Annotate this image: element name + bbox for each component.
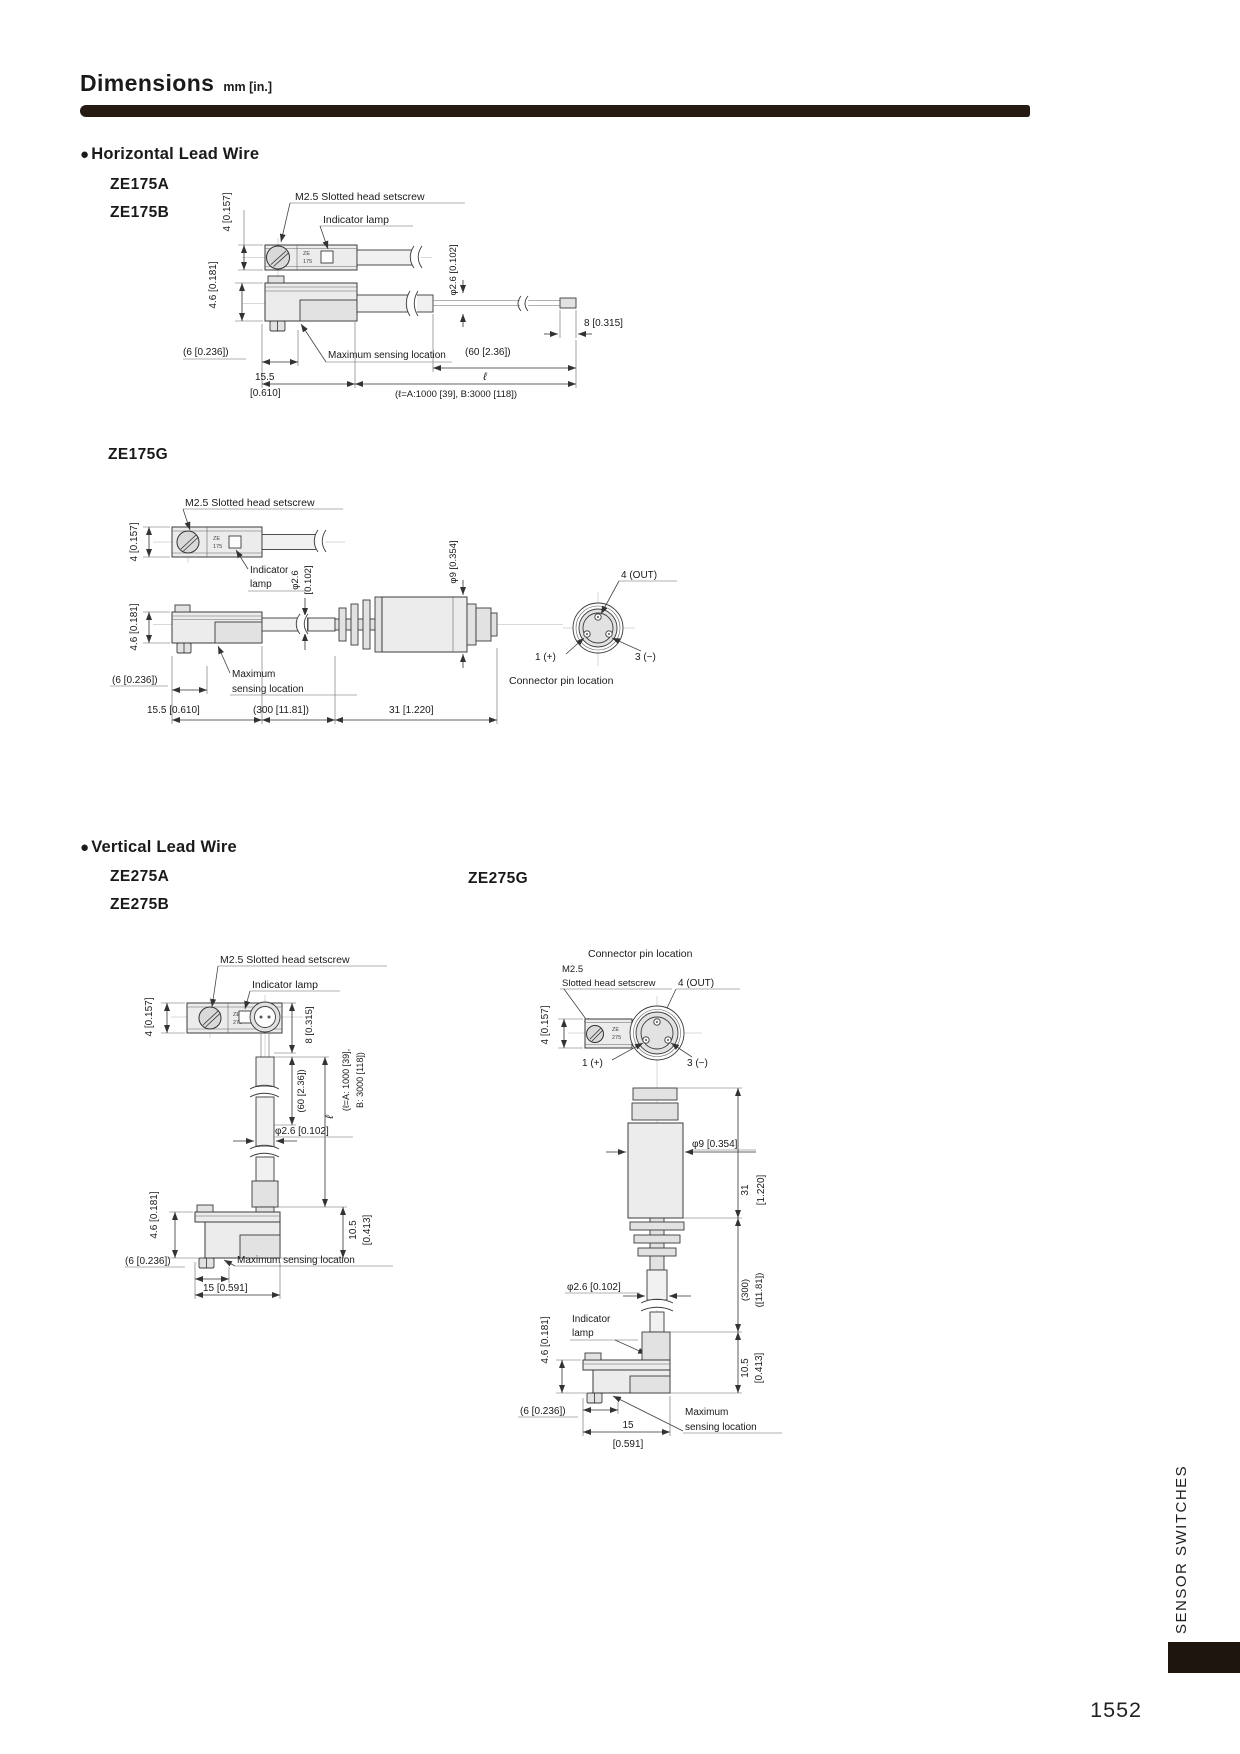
max-sensing-label: Maximum sensing location — [224, 1255, 393, 1266]
svg-text:M2.5: M2.5 — [562, 964, 583, 975]
dim-155-label: 15.5 [0.610] — [147, 705, 200, 716]
dim-31-inch-label: [1.220] — [756, 1174, 767, 1205]
dim-dia26-label: φ2.6 [0.102] — [448, 244, 459, 295]
pin-1-label: 1 (+) — [582, 1058, 603, 1069]
indicator-lamp-label: Indicator lamp — [320, 214, 413, 249]
dim-dia26-label: φ2.6 [0.102] — [275, 1126, 329, 1137]
svg-text:Connector pin location: Connector pin location — [588, 948, 693, 960]
dim-4-label: 4 [0.157] — [222, 192, 233, 231]
dim-31-label: 31 — [740, 1184, 751, 1196]
dim-46-label: 4.6 [0.181] — [149, 1191, 160, 1238]
dim-155-label: 15.5 — [255, 372, 275, 383]
dim-ell-def-b: B: 3000 [118]) — [355, 1052, 365, 1108]
side-view — [265, 276, 576, 331]
dim-300-inch-label: ([11.81]) — [754, 1273, 765, 1308]
bullet-icon: ● — [80, 146, 89, 163]
dim-105-label: 10.5 — [740, 1358, 751, 1378]
ze275g-drawing: Connector pin location M2.5 Slotted head… — [460, 940, 790, 1460]
pin-4-label: 4 (OUT) — [678, 978, 714, 989]
dim-height-46: 4.6 [0.181] — [129, 603, 170, 650]
dim-155-and-ell: 15.5 [0.610] ℓ (ℓ=A:1000 [39], B:3000 [1… — [250, 322, 576, 400]
dim-46-label: 4.6 [0.181] — [208, 261, 219, 308]
dim-300-label: (300 [11.81]) — [253, 705, 309, 716]
top-view: ZE 275 — [585, 1006, 684, 1060]
dim-6-label: (6 [0.236]) — [520, 1406, 566, 1417]
dim-6-label: (6 [0.236]) — [125, 1256, 171, 1267]
dim-ell-label: ℓ — [482, 371, 487, 383]
dim-8: 8 [0.315] — [544, 310, 623, 338]
body-marking-ze: ZE — [303, 251, 310, 257]
dim-dia9-label: φ9 [0.354] — [448, 540, 459, 583]
dim-4-label: 4 [0.157] — [144, 997, 155, 1036]
dim-6: (6 [0.236]) — [518, 1398, 618, 1436]
dim-46-label: 4.6 [0.181] — [540, 1316, 551, 1363]
setscrew-label: M2.5 Slotted head setscrew — [183, 497, 343, 530]
svg-text:Slotted head setscrew: Slotted head setscrew — [562, 978, 656, 989]
pin-1-label: 1 (+) — [535, 652, 556, 663]
pin-4-label: 4 (OUT) — [621, 570, 657, 581]
page-title-unit: mm [in.] — [223, 80, 272, 94]
svg-text:Maximum sensing location: Maximum sensing location — [328, 350, 446, 361]
connector-pin-face — [630, 1006, 684, 1060]
dim-15: 15 [0.591] — [583, 1396, 670, 1450]
page-header: Dimensionsmm [in.] — [80, 70, 272, 97]
svg-text:Maximum: Maximum — [232, 669, 275, 680]
dim-46-label: 4.6 [0.181] — [129, 603, 140, 650]
dim-300-label: (300) — [740, 1279, 751, 1301]
dim-4-label: 4 [0.157] — [129, 522, 140, 561]
dim-ell-def-a: (ℓ=A: 1000 [39], — [341, 1049, 351, 1111]
vertical-cable — [641, 1270, 673, 1332]
dim-8-label: 8 [0.315] — [304, 1007, 315, 1044]
max-sensing-label: Maximum sensing location — [218, 646, 357, 695]
svg-text:Indicator lamp: Indicator lamp — [323, 214, 389, 226]
dim-60-label: (60 [2.36]) — [296, 1069, 307, 1112]
svg-text:Maximum sensing location: Maximum sensing location — [237, 1255, 355, 1266]
strain-relief — [630, 1218, 684, 1270]
indicator-lamp-icon — [239, 1011, 251, 1023]
mounting-screw-top — [175, 605, 190, 612]
dim-15-label: 15 — [622, 1420, 634, 1431]
ze175g-drawing: ZE 175 M2.5 Slotted head setscrew 4 [0.1… — [95, 470, 735, 730]
dim-dia26-label: φ2.6 [0.102] — [567, 1282, 621, 1293]
body-marking-175: 175 — [213, 544, 222, 550]
body-marking-ze: ZE — [612, 1027, 619, 1033]
wire-tip — [560, 298, 576, 308]
svg-text:Indicator: Indicator — [572, 1314, 611, 1325]
dim-8-label: 8 [0.315] — [584, 318, 623, 329]
dim-155-inch-label: [0.610] — [250, 388, 281, 399]
mounting-screw-top — [585, 1353, 601, 1360]
ze175ab-drawing: ZE 175 4 [0.157] M2.5 Slotted head setsc… — [180, 162, 650, 402]
model-ze275a: ZE275A — [110, 868, 169, 886]
ze275ab-drawing: ZE 275 M2.5 Slotted head setscrew Indica… — [125, 945, 465, 1345]
svg-text:M2.5 Slotted head setscrew: M2.5 Slotted head setscrew — [185, 497, 315, 509]
pin-3-label: 3 (−) — [687, 1058, 708, 1069]
dim-15-label: 15 [0.591] — [203, 1283, 248, 1294]
model-ze275b: ZE275B — [110, 896, 169, 914]
side-view — [172, 597, 497, 653]
model-ze175b: ZE175B — [110, 204, 169, 222]
svg-text:M2.5 Slotted head setscrew: M2.5 Slotted head setscrew — [220, 954, 350, 966]
dim-60: (60 [2.36]) — [274, 1057, 329, 1125]
side-tab-marker — [1168, 1642, 1240, 1673]
bullet-icon: ● — [80, 839, 89, 856]
dim-cable-dia: φ2.6 [0.102] — [290, 565, 314, 650]
dim-cable-dia: φ2.6 [0.102] — [565, 1282, 691, 1296]
svg-text:M2.5 Slotted head setscrew: M2.5 Slotted head setscrew — [295, 191, 425, 203]
cable-boot — [252, 1181, 278, 1207]
dim-dia26-label: φ2.6 — [290, 570, 301, 589]
top-view: ZE 175 — [265, 245, 422, 270]
dim-cable-dia: φ2.6 [0.102] — [233, 1126, 353, 1141]
dim-height-4: 4 [0.157] — [540, 1005, 583, 1048]
top-view: ZE 275 — [187, 1002, 282, 1033]
vertical-cable — [250, 1033, 279, 1212]
indicator-lamp-label: Indicator lamp — [570, 1314, 646, 1354]
svg-text:sensing location: sensing location — [232, 684, 304, 695]
dim-105: 10.5 [0.413] — [280, 1207, 373, 1258]
connector-pin-location-label: Connector pin location — [588, 948, 693, 960]
strain-relief — [335, 597, 387, 652]
connector-barrel — [382, 597, 497, 652]
body-marking-275: 275 — [612, 1035, 621, 1041]
svg-text:sensing location: sensing location — [685, 1422, 757, 1433]
svg-text:lamp: lamp — [572, 1328, 594, 1339]
dim-4-label: 4 [0.157] — [540, 1005, 551, 1044]
dim-6-label: (6 [0.236]) — [183, 347, 229, 358]
dim-dia26-inch-label: [0.102] — [303, 565, 314, 594]
max-sensing-label: Maximum sensing location — [613, 1396, 782, 1433]
connector-barrel — [628, 1088, 684, 1270]
dim-ell-def-label: (ℓ=A:1000 [39], B:3000 [118]) — [395, 389, 517, 400]
dim-105: 10.5 [0.413] — [670, 1332, 765, 1393]
model-ze175a: ZE175A — [110, 176, 169, 194]
catalog-page: Dimensionsmm [in.] ●Horizontal Lead Wire… — [0, 0, 1240, 1754]
setscrew-icon — [267, 246, 290, 269]
dim-105-label: 10.5 — [348, 1220, 359, 1240]
dim-cable-dia: φ2.6 [0.102] — [448, 244, 463, 327]
dim-105-inch-label: [0.413] — [362, 1214, 373, 1245]
model-ze275g: ZE275G — [468, 870, 528, 888]
side-view — [583, 1332, 670, 1403]
model-ze175g: ZE175G — [108, 446, 168, 464]
dim-dia9-label: φ9 [0.354] — [692, 1139, 738, 1150]
dim-row: 15.5 [0.610] (300 [11.81]) 31 [1.220] — [147, 646, 497, 724]
dim-31-label: 31 [1.220] — [389, 705, 434, 716]
svg-text:Indicator lamp: Indicator lamp — [252, 979, 318, 991]
section-vertical-heading: ●Vertical Lead Wire — [80, 838, 237, 857]
page-number: 1552 — [1042, 1698, 1142, 1723]
indicator-lamp-icon — [321, 251, 333, 263]
svg-text:Indicator: Indicator — [250, 565, 289, 576]
dim-31: 31 [1.220] — [677, 1088, 767, 1218]
mounting-screw-top — [268, 276, 284, 283]
top-view: ZE 175 — [172, 527, 326, 557]
max-sensing-label: Maximum sensing location — [301, 324, 452, 362]
pin-3-label: 3 (−) — [635, 652, 656, 663]
dim-15-inch-label: [0.591] — [613, 1439, 644, 1450]
page-title: Dimensions — [80, 70, 214, 96]
dim-105-inch-label: [0.413] — [754, 1352, 765, 1383]
dim-60: (60 [2.36]) — [433, 314, 576, 388]
svg-text:Maximum: Maximum — [685, 1407, 728, 1418]
side-tab-label: SENSOR SWITCHES — [1168, 1464, 1196, 1634]
cable-boot — [642, 1332, 670, 1360]
dim-height-4: 4 [0.157] — [222, 192, 263, 270]
dim-height-46: 4.6 [0.181] — [149, 1191, 203, 1258]
dim-6: (6 [0.236]) — [183, 324, 298, 388]
dim-300: (300) ([11.81]) — [670, 1218, 765, 1332]
dim-6-label: (6 [0.236]) — [112, 675, 158, 686]
mounting-screw-top — [197, 1205, 213, 1212]
header-rule — [80, 105, 1030, 117]
connector-pin-face — [573, 603, 623, 653]
svg-text:lamp: lamp — [250, 579, 272, 590]
body-marking-175: 175 — [303, 259, 312, 265]
dim-ell-label: ℓ — [324, 1115, 336, 1120]
body-marking-ze: ZE — [213, 536, 220, 542]
connector-pin-location-label: Connector pin location — [509, 675, 614, 687]
dim-60-label: (60 [2.36]) — [465, 347, 511, 358]
indicator-lamp-icon — [229, 536, 241, 548]
